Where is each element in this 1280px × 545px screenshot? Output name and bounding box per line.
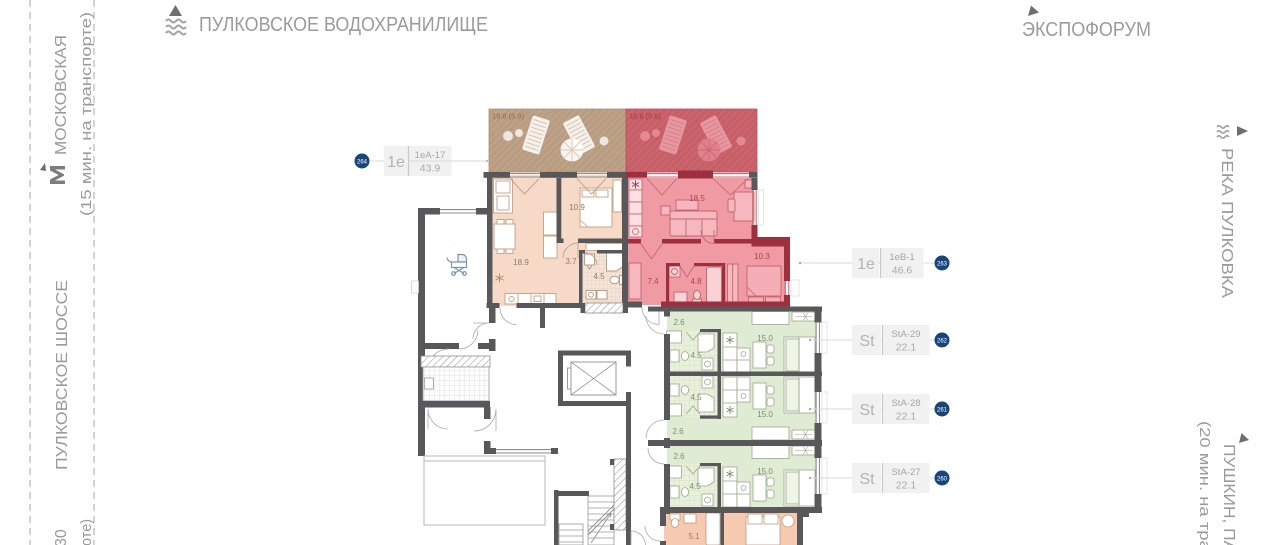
svg-text:ПУЛКОВСКОЕ ВОДОХРАНИЛИЩЕ: ПУЛКОВСКОЕ ВОДОХРАНИЛИЩЕ xyxy=(199,14,488,36)
svg-text:18.6 (5.6): 18.6 (5.6) xyxy=(629,112,662,121)
svg-text:1еВ-1: 1еВ-1 xyxy=(889,252,914,263)
svg-text:St: St xyxy=(859,333,875,350)
svg-text:43.9: 43.9 xyxy=(420,163,441,175)
svg-text:22.1: 22.1 xyxy=(896,480,917,492)
svg-text:3.7: 3.7 xyxy=(565,257,577,266)
svg-text:15.0: 15.0 xyxy=(757,467,773,476)
svg-text:2.6: 2.6 xyxy=(673,318,685,327)
svg-text:1е: 1е xyxy=(857,256,875,273)
svg-text:7.4: 7.4 xyxy=(647,277,659,286)
svg-text:15.0: 15.0 xyxy=(757,410,773,419)
svg-text:10.3: 10.3 xyxy=(754,252,770,261)
svg-text:1е: 1е xyxy=(387,154,405,171)
svg-text:46.6: 46.6 xyxy=(892,265,913,277)
svg-text:StA-27: StA-27 xyxy=(891,467,920,478)
svg-text:StA-28: StA-28 xyxy=(891,398,920,409)
svg-text:МОСКОВСКАЯ: МОСКОВСКАЯ xyxy=(53,35,70,155)
svg-text:оте): оте) xyxy=(79,519,95,545)
svg-text:ПУШКИН, ПАВЛОВСК: ПУШКИН, ПАВЛОВСК xyxy=(1220,444,1237,545)
svg-text:22.1: 22.1 xyxy=(896,411,917,423)
svg-text:30: 30 xyxy=(53,529,70,545)
svg-text:22.1: 22.1 xyxy=(896,342,917,354)
svg-text:ЭКСПОФОРУМ: ЭКСПОФОРУМ xyxy=(1022,19,1151,41)
svg-text:4.5: 4.5 xyxy=(690,351,702,360)
svg-text:264: 264 xyxy=(357,159,368,165)
svg-text:РЕКА ПУЛКОВКА: РЕКА ПУЛКОВКА xyxy=(1218,148,1235,298)
svg-text:260: 260 xyxy=(937,476,948,482)
svg-text:262: 262 xyxy=(937,338,948,344)
svg-text:15.0: 15.0 xyxy=(757,334,773,343)
svg-text:St: St xyxy=(859,471,875,488)
svg-text:263: 263 xyxy=(937,261,948,267)
svg-text:18.9: 18.9 xyxy=(513,258,529,267)
svg-text:1еА-17: 1еА-17 xyxy=(415,150,446,161)
svg-text:5.1: 5.1 xyxy=(688,532,700,541)
svg-text:261: 261 xyxy=(937,407,948,413)
svg-text:StA-29: StA-29 xyxy=(891,329,920,340)
svg-text:4.5: 4.5 xyxy=(689,482,701,491)
svg-text:ПУЛКОВСКОЕ ШОССЕ: ПУЛКОВСКОЕ ШОССЕ xyxy=(54,280,71,470)
svg-text:(15 мин. на транспорте): (15 мин. на транспорте) xyxy=(79,12,95,216)
svg-text:19.8 (5.9): 19.8 (5.9) xyxy=(492,112,525,121)
svg-text:4.5: 4.5 xyxy=(690,393,702,402)
svg-text:4.5: 4.5 xyxy=(593,272,605,281)
svg-text:10.9: 10.9 xyxy=(569,203,585,212)
svg-text:(20 мин. на транспорте): (20 мин. на транспорте) xyxy=(1196,421,1212,545)
svg-text:2.6: 2.6 xyxy=(672,427,684,436)
svg-text:4.8: 4.8 xyxy=(690,277,702,286)
svg-text:2.6: 2.6 xyxy=(673,452,685,461)
svg-text:18.5: 18.5 xyxy=(689,194,705,203)
svg-text:St: St xyxy=(859,402,875,419)
